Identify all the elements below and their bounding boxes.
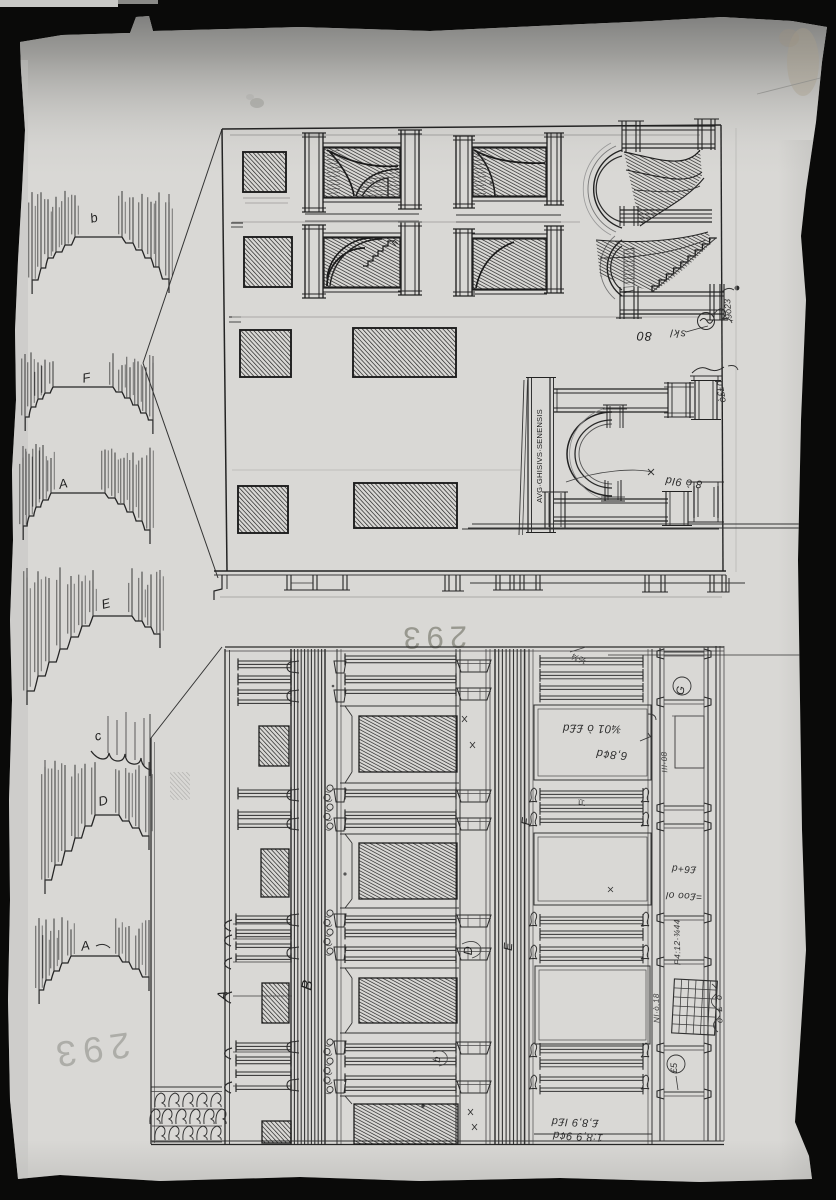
svg-text:III·08: III·08 — [660, 751, 670, 773]
svg-text:A: A — [213, 990, 230, 1002]
svg-text:AVG·GHISIVS·SENENSIS: AVG·GHISIVS·SENENSIS — [535, 409, 544, 503]
svg-text:D: D — [461, 946, 476, 956]
svg-text:£,8,9 I£d: £,8,9 I£d — [551, 1115, 600, 1129]
svg-text:P4:12·¾44: P4:12·¾44 — [672, 919, 683, 965]
svg-text:293: 293 — [397, 619, 467, 655]
svg-text:80: 80 — [636, 329, 652, 344]
svg-text:skl: skl — [669, 326, 686, 339]
svg-text:Fʲ: Fʲ — [577, 799, 587, 807]
svg-text:NI·ò,18: NI·ò,18 — [652, 993, 662, 1023]
svg-text:,9ò23: ,9ò23 — [722, 299, 734, 322]
svg-text:£6+d: £6+d — [671, 862, 697, 874]
svg-text:£5: £5 — [669, 1062, 679, 1074]
svg-text:=£οο οl: =£οο οl — [665, 889, 702, 902]
svg-text:¾01 ò ££d: ¾01 ò ££d — [562, 721, 621, 734]
svg-text:ò £ ò: ò £ ò — [713, 993, 724, 1023]
